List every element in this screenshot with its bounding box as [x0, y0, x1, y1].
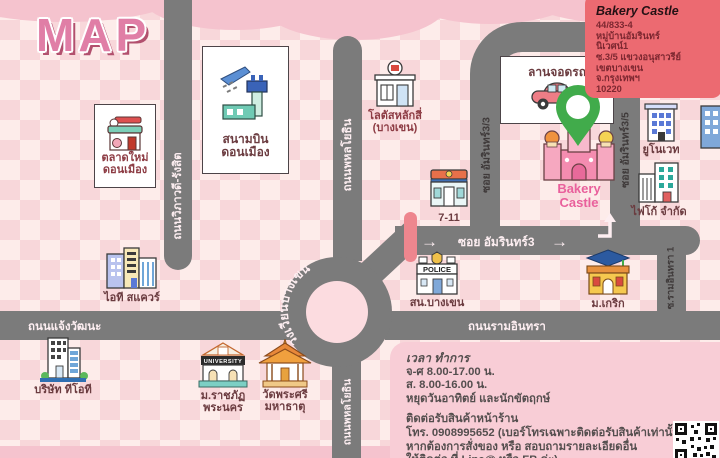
- shop-info-card: Bakery Castle 44/833-4 หมู่บ้านอัมรินทร์…: [585, 0, 720, 98]
- svg-text:UNIVERSITY: UNIVERSITY: [204, 359, 243, 365]
- road-label-soi-amarin-3: ซอย อัมรินทร์3: [458, 233, 535, 252]
- landmark-seven-eleven: 7-11: [425, 168, 473, 224]
- shop-address-line: เขตบางเขน: [596, 63, 712, 74]
- shop-postcode: 10220: [596, 84, 712, 95]
- landmark-tot: บริษัท ทีโอที: [30, 336, 96, 396]
- police-station-icon: POLICE: [411, 251, 463, 297]
- landmark-it-square: ไอที สแควร์: [100, 246, 164, 304]
- market-icon: [105, 116, 145, 152]
- road-label-soi-raminthra-1: ซ.รามอินทรา 1: [664, 247, 679, 310]
- card-market: ตลาดใหม่ ดอนเมือง: [94, 104, 156, 188]
- arrow-right-icon: →: [551, 233, 568, 250]
- temple-label: วัดพระศรี: [262, 389, 307, 401]
- it-square-label: ไอที สแควร์: [104, 292, 160, 304]
- bakery-castle-label: Castle: [559, 196, 598, 210]
- svg-text:POLICE: POLICE: [423, 265, 451, 274]
- landmark-krirk: ม.เกริก: [580, 248, 636, 310]
- airport-label: สนามบิน: [223, 133, 269, 146]
- unovate-label: ยูโนเวท: [642, 144, 679, 156]
- hours-line: จ-ศ 8.00-17.00 น.: [406, 366, 720, 380]
- lotus-store-icon: [371, 60, 419, 110]
- landmark-temple: วัดพระศรี มหาธาตุ: [252, 339, 318, 414]
- market-label: ตลาดใหม่: [101, 152, 148, 164]
- road-label-phahonyothin-bottom: ถนนพหลโยธิน: [339, 379, 356, 445]
- tot-label: บริษัท ทีโอที: [34, 384, 91, 396]
- hours-line: หยุดวันอาทิตย์ และนักขัตฤกษ์: [406, 393, 720, 407]
- hours-line: ส. 8.00-16.00 น.: [406, 379, 720, 393]
- lotus-label: โลตัสหลักสี่: [368, 110, 422, 122]
- svg-text:วงเวียนบางเขน: วงเวียนบางเขน: [277, 261, 313, 349]
- shop-address-line: นิเวศน์1: [596, 41, 712, 52]
- university-building-icon: UNIVERSITY: [197, 342, 249, 390]
- hours-heading: เวลา ทำการ: [406, 351, 720, 366]
- landmark-rajabhat: UNIVERSITY ม.ราชภัฏ พระนคร: [192, 342, 254, 415]
- company-building-icon: [637, 160, 681, 206]
- turn-up-arrow-icon: [596, 211, 620, 239]
- airport-icon: [215, 61, 277, 133]
- office-building-icon: [642, 102, 680, 144]
- airport-label: ดอนเมือง: [221, 146, 269, 159]
- krirk-label: ม.เกริก: [591, 298, 624, 310]
- qr-code: [673, 421, 719, 458]
- arrow-right-icon: →: [421, 233, 438, 250]
- tower-building-icon: [38, 336, 88, 384]
- parking-label: ลานจอดรถ: [528, 66, 586, 79]
- road-label-phahonyothin-top: ถนนพหลโยธิน: [339, 119, 357, 192]
- road-label-vibhavadi: ถนนวิภาวดี-รังสิต: [169, 152, 187, 239]
- hours-contact-panel: เวลา ทำการ จ-ศ 8.00-17.00 น. ส. 8.00-16.…: [390, 342, 720, 458]
- edge-building-icon: [699, 104, 720, 150]
- seven-eleven-store-icon: [426, 168, 472, 212]
- figo-label: ไฟโก้ จำกัด: [631, 206, 686, 218]
- school-graduation-icon: [583, 248, 633, 298]
- temple-icon: [255, 339, 315, 389]
- page-title: MAP: [36, 8, 150, 62]
- buildings-cluster-icon: [104, 246, 160, 292]
- rajabhat-label: ม.ราชภัฏ: [201, 390, 246, 402]
- shop-address-line: จ.กรุงเทพฯ: [596, 73, 712, 84]
- bakery-castle-label: Bakery: [557, 182, 600, 196]
- landmark-figo: ไฟโก้ จำกัด: [625, 160, 693, 218]
- temple-label: มหาธาตุ: [265, 401, 306, 413]
- landmark-lotus: โลตัสหลักสี่ (บางเขน): [362, 60, 428, 135]
- road-label-soi-amarin-3-3: ซอย อัมรินทร์3/3: [478, 117, 495, 193]
- card-airport: สนามบิน ดอนเมือง: [202, 46, 289, 174]
- market-label: ดอนเมือง: [103, 164, 147, 176]
- police-label: สน.บางเขน: [410, 297, 465, 309]
- shop-address-line: ซ.3/5 แขวงอนุสาวรีย์: [596, 52, 712, 63]
- map-page: MAP ถนนวิภาวดี-รังสิต ถนนพหลโยธิน ถนนพหล…: [0, 0, 720, 458]
- road-label-chaengwattana: ถนนแจ้งวัฒนะ: [28, 318, 101, 336]
- landmark-police: POLICE สน.บางเขน: [406, 251, 468, 309]
- seven-eleven-label: 7-11: [438, 212, 459, 224]
- rajabhat-label: พระนคร: [203, 402, 243, 414]
- road-label-raminthra: ถนนรามอินทรา: [468, 318, 546, 336]
- landmark-unovate: ยูโนเวท: [632, 102, 690, 156]
- lotus-label: (บางเขน): [373, 122, 418, 134]
- shop-address-line: 44/833-4: [596, 20, 712, 31]
- shop-address-line: หมู่บ้านอัมรินทร์: [596, 31, 712, 42]
- shop-name: Bakery Castle: [596, 4, 712, 18]
